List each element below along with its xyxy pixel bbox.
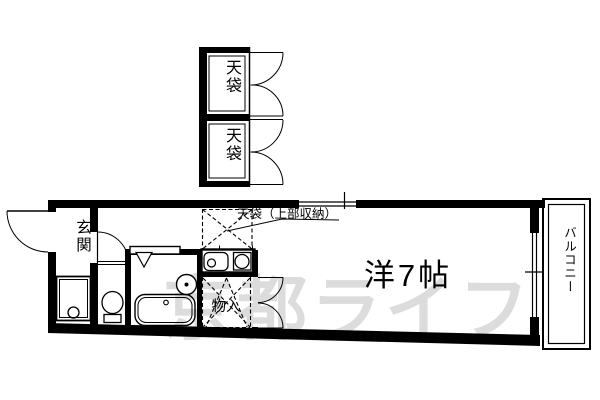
label-genkan: 玄関 [59, 219, 93, 254]
tenbukuro-doors [250, 53, 283, 185]
label-balcony: バルコニー [553, 226, 579, 294]
floor-plan: 京都ライフ [0, 0, 600, 400]
entrance-door-arc [7, 211, 48, 252]
label-main-room: 洋7帖 [308, 250, 508, 295]
label-tenbukuro-top: 天袋 [209, 59, 243, 95]
toilet [102, 292, 123, 323]
label-tenbukuro-note: 天袋（上部収納） [237, 203, 337, 222]
label-monoire: 物入 [196, 295, 256, 316]
washbasin [177, 275, 197, 295]
floor-plan-drawing: 京都ライフ [0, 0, 600, 400]
label-tenbukuro-bottom: 天袋 [209, 127, 243, 163]
